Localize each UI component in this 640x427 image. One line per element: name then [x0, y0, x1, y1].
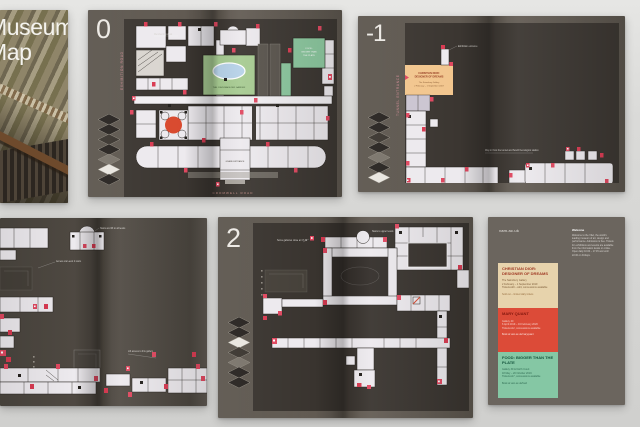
note-dome-level2: Stairs to upper levels: [372, 230, 394, 233]
svg-text:FOOD:: FOOD:: [306, 48, 313, 50]
svg-text:2 February – 1 September 2019: 2 February – 1 September 2019: [414, 85, 444, 88]
exhibition-card-food: FOOD: BIGGER THAN THE PLATE Gallery 39 &…: [498, 352, 558, 398]
dior-gallery: CHRISTIAN DIOR: DESIGNER OF DREAMS The S…: [405, 62, 453, 95]
note-closures: Some galleries close at 17.30: [277, 239, 308, 242]
spread-level-2: 2: [218, 217, 473, 418]
dome-level2: [357, 231, 370, 244]
level-stack-icon: [366, 112, 392, 188]
exhibition-title: CHRISTIAN DIOR: DESIGNER OF DREAMS: [502, 267, 554, 276]
cover-page: Museum Map: [0, 10, 68, 203]
cover-title-line1: Museum: [0, 15, 68, 40]
grand-entrance-label: GRAND ENTRANCE: [226, 160, 245, 163]
exhibition-card-dior: CHRISTIAN DIOR: DESIGNER OF DREAMS The S…: [498, 263, 558, 308]
floor-plan-level0: THE JOHN MADEJSKI GARDEN FOOD: BIGGER TH…: [128, 18, 340, 197]
photo-of-museum-map-brochures: Museum Map 0 EXHIBITION ROAD: [0, 0, 640, 427]
website-url: vam.ac.uk: [499, 228, 519, 233]
exhibition-road-label: EXHIBITION ROAD: [120, 51, 124, 90]
level-0-numeral: 0: [96, 14, 110, 45]
visitor-info-body: Welcome to the V&A, the world's leading …: [572, 234, 614, 258]
garden-label: THE JOHN MADEJSKI GARDEN: [213, 86, 246, 89]
cromwell-road-label: CROMWELL ROAD: [212, 191, 253, 195]
exhibition-tickets: Tickets £20 – £24, concessions available: [502, 286, 554, 290]
cover-title-line2: Map: [0, 40, 68, 65]
garden-pond: [213, 63, 245, 79]
rooms-partial: [0, 226, 207, 394]
note-tunnel-way-in: Way in from the tunnel and South Kensing…: [485, 149, 539, 152]
level-stack-icon: [96, 114, 122, 190]
floor-plan-minus1: CHRISTIAN DIOR: DESIGNER OF DREAMS The S…: [405, 23, 619, 183]
spread-level-0: 0 EXHIBITION ROAD: [88, 10, 342, 197]
level-stack-icon: [226, 317, 252, 393]
tunnel-entrance-label: TUNNEL ENTRANCE: [396, 74, 400, 116]
garden: THE JOHN MADEJSKI GARDEN: [203, 55, 255, 95]
exhibition-title: MARY QUANT: [502, 312, 554, 317]
svg-text:The Sainsbury Gallery: The Sainsbury Gallery: [419, 81, 441, 84]
dior-gallery-block: [405, 65, 453, 95]
mint-gallery: FOOD: BIGGER THAN THE PLATE: [293, 38, 325, 68]
level-2-numeral: 2: [226, 223, 240, 254]
note-membership: Membership desk: [154, 33, 173, 36]
rooms-level2: [263, 227, 469, 387]
dotted-wall: [261, 270, 263, 296]
note-dome: Stairs and lift to all levels: [100, 227, 126, 230]
level-minus1-numeral: -1: [366, 20, 385, 48]
exhibition-footnote: Book at vam.ac.uk/maryquant: [502, 333, 554, 336]
exhibition-title: FOOD: BIGGER THAN THE PLATE: [502, 356, 554, 365]
svg-text:DESIGNER OF DREAMS: DESIGNER OF DREAMS: [415, 76, 444, 79]
exhibition-footnote: Sold out – limited daily tickets: [502, 293, 554, 296]
exhibition-footnote: Book at vam.ac.uk/food: [502, 382, 554, 385]
exhibition-card-quant: MARY QUANT Gallery 40 6 April 2019 – 16 …: [498, 308, 558, 352]
rotunda-red-dome: [165, 117, 182, 134]
note-left: Access via Level 2 stairs: [56, 260, 82, 263]
back-cover-page: vam.ac.uk Welcome Welcome to the V&A, th…: [488, 217, 625, 405]
note-mid: Lift access to this gallery: [128, 350, 154, 353]
cover-title: Museum Map: [0, 15, 68, 66]
spread-level-1-partial: Stairs and lift to all levels Access via…: [0, 218, 207, 406]
svg-text:THE PLATE: THE PLATE: [303, 54, 315, 57]
note-exhibition-entrance: Exhibition entrance: [458, 45, 478, 48]
floor-plan-partial: Stairs and lift to all levels Access via…: [0, 218, 207, 406]
spread-level-minus1: -1 TUNNEL ENTRANCE CHRISTIAN DIOR: DESIG…: [358, 16, 625, 192]
exhibition-tickets: Tickets £17, concessions available: [502, 375, 554, 379]
svg-text:BIGGER THAN: BIGGER THAN: [301, 51, 316, 54]
visitor-info: Welcome Welcome to the V&A, the world's …: [572, 228, 614, 257]
visitor-info-heading: Welcome: [572, 228, 614, 232]
exhibition-tickets: Tickets £12, concessions available: [502, 327, 554, 331]
floor-plan-level2: Some galleries close at 17.30 Stairs to …: [253, 223, 469, 411]
